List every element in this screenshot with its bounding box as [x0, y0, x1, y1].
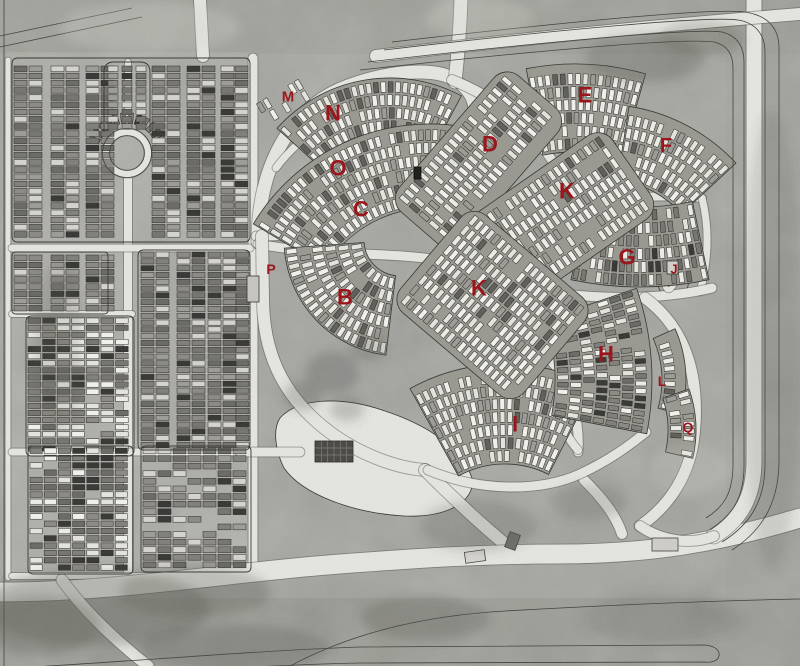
section-label-n: N	[325, 101, 341, 126]
section-label-m: M	[282, 89, 295, 106]
section-label-q: Q	[683, 419, 694, 435]
section-label-e: E	[578, 83, 593, 108]
section-label-f: F	[660, 135, 672, 157]
section-label-c: C	[353, 197, 369, 222]
section-label-l: L	[658, 373, 667, 389]
section-label-k-lower: K	[471, 276, 487, 301]
section-label-j: J	[670, 262, 677, 277]
aerial-map-canvas: MNOCDEFKGJPBKHLIQ	[0, 0, 800, 666]
section-label-o: O	[329, 156, 346, 181]
photo-grain-overlay	[0, 0, 800, 666]
section-label-i: I	[512, 412, 518, 437]
section-label-d: D	[482, 132, 498, 157]
cemetery-aerial-map: MNOCDEFKGJPBKHLIQ	[0, 0, 800, 666]
section-label-h: H	[598, 342, 614, 367]
section-label-g: G	[618, 245, 635, 270]
section-label-k-upper: K	[559, 179, 575, 204]
section-label-p: P	[266, 261, 275, 277]
section-label-b: B	[337, 285, 353, 310]
